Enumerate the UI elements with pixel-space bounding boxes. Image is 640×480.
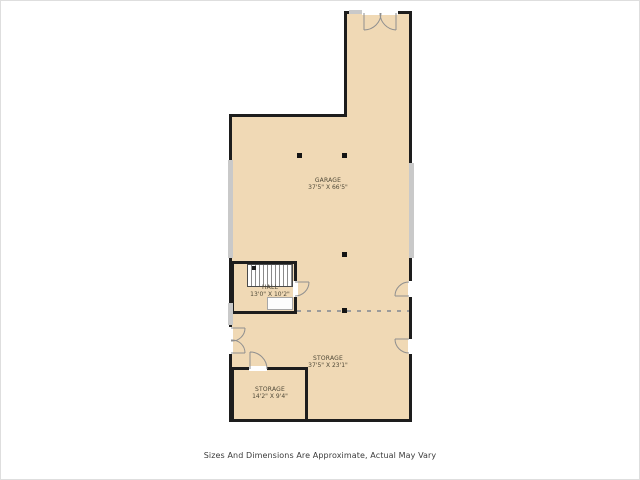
- door-arc-right-lower: [395, 339, 409, 353]
- disclaimer-text: Sizes And Dimensions Are Approximate, Ac…: [0, 451, 640, 460]
- door-arc-top-left-leaf: [364, 13, 381, 30]
- room-label-hall: HALL 13'0" X 10'2": [250, 284, 290, 298]
- door-arc-left-lower-leaf: [231, 340, 245, 353]
- storage-small-dims: 14'2" X 9'4": [252, 393, 288, 400]
- door-arc-small-storage: [250, 352, 267, 369]
- room-label-storage-small: STORAGE 14'2" X 9'4": [252, 386, 288, 400]
- hall-name: HALL: [250, 284, 290, 291]
- garage-name: GARAGE: [308, 177, 348, 184]
- door-arcs-layer: [0, 0, 640, 480]
- storage-small-name: STORAGE: [252, 386, 288, 393]
- storage-main-dims: 37'5" X 23'1": [308, 362, 348, 369]
- door-arc-hall: [295, 282, 309, 296]
- garage-dims: 37'5" X 66'5": [308, 184, 348, 191]
- door-arc-left-upper-leaf: [231, 328, 245, 341]
- door-arc-top-right-leaf: [380, 13, 396, 30]
- floorplan-page: { "page": { "disclaimer": "Sizes And Dim…: [0, 0, 640, 480]
- door-arc-right-upper: [395, 282, 409, 296]
- room-label-storage-main: STORAGE 37'5" X 23'1": [308, 355, 348, 369]
- storage-main-name: STORAGE: [308, 355, 348, 362]
- hall-dims: 13'0" X 10'2": [250, 291, 290, 298]
- room-label-garage: GARAGE 37'5" X 66'5": [308, 177, 348, 191]
